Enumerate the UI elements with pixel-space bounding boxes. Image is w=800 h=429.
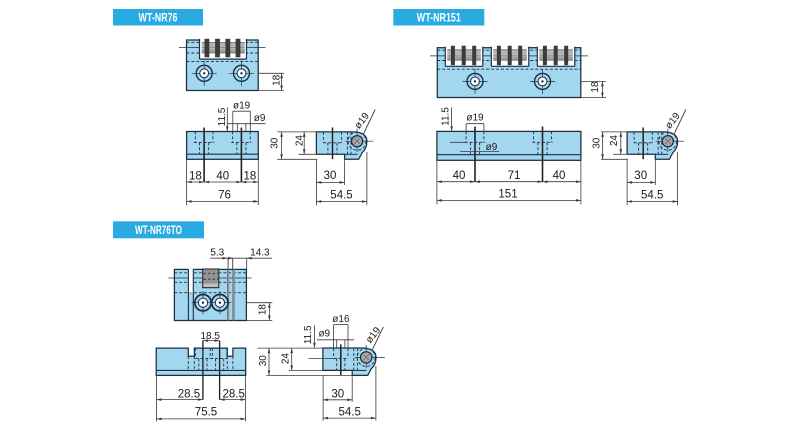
svg-text:28.5: 28.5: [178, 389, 200, 401]
svg-text:ø19: ø19: [466, 112, 484, 123]
svg-text:WT-NR151: WT-NR151: [417, 10, 461, 24]
svg-text:ø16: ø16: [332, 314, 350, 325]
svg-text:18: 18: [271, 74, 282, 86]
svg-text:30: 30: [270, 137, 281, 149]
svg-text:11.5: 11.5: [303, 325, 314, 344]
svg-text:5.3: 5.3: [210, 247, 224, 258]
svg-text:30: 30: [634, 170, 647, 182]
svg-text:11.5: 11.5: [440, 107, 451, 126]
svg-text:75.5: 75.5: [195, 407, 217, 419]
svg-text:WT-NR76TO: WT-NR76TO: [135, 223, 182, 237]
svg-text:151: 151: [498, 189, 517, 201]
svg-text:18: 18: [590, 81, 601, 93]
svg-text:54.5: 54.5: [330, 190, 352, 202]
svg-text:18: 18: [257, 304, 268, 316]
svg-text:ø9: ø9: [318, 329, 330, 340]
svg-text:54.5: 54.5: [641, 190, 663, 202]
svg-text:40: 40: [453, 170, 466, 182]
svg-text:11.5: 11.5: [217, 107, 228, 126]
svg-text:18: 18: [244, 170, 257, 182]
svg-text:30: 30: [258, 355, 269, 367]
svg-text:24: 24: [609, 135, 620, 147]
svg-text:ø9: ø9: [486, 142, 498, 153]
svg-text:40: 40: [553, 170, 566, 182]
svg-text:18.5: 18.5: [200, 331, 220, 342]
svg-text:WT-NR76: WT-NR76: [139, 10, 178, 24]
svg-text:18: 18: [189, 170, 202, 182]
svg-text:30: 30: [592, 137, 603, 149]
svg-text:ø19: ø19: [233, 101, 251, 112]
svg-text:54.5: 54.5: [339, 406, 361, 418]
svg-text:76: 76: [218, 190, 231, 202]
svg-text:30: 30: [324, 170, 337, 182]
svg-text:28.5: 28.5: [223, 389, 245, 401]
svg-text:30: 30: [331, 388, 344, 400]
svg-text:71: 71: [508, 170, 521, 182]
svg-text:ø9: ø9: [254, 113, 266, 124]
svg-text:24: 24: [295, 135, 306, 147]
svg-text:40: 40: [216, 170, 229, 182]
svg-text:24: 24: [281, 353, 292, 365]
svg-text:14.3: 14.3: [250, 247, 270, 258]
